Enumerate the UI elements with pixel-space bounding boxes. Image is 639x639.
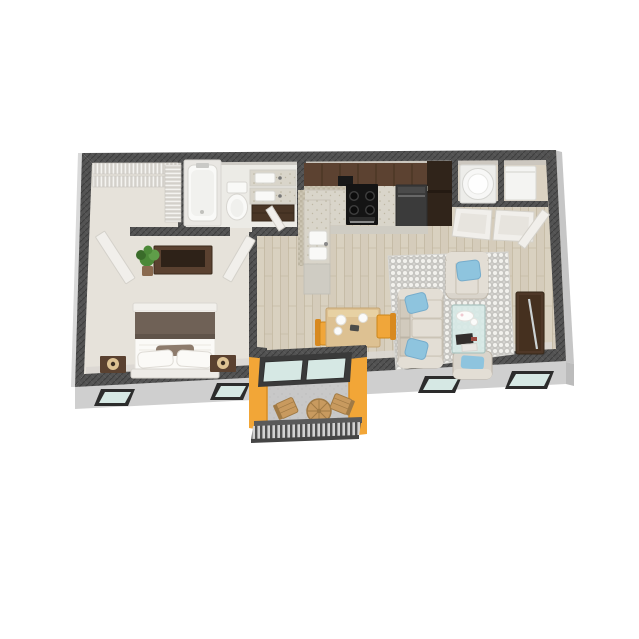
refrigerator-handle — [427, 190, 452, 193]
table-center — [317, 409, 321, 413]
refrigerator — [427, 161, 452, 226]
dryer-panel-line — [505, 171, 536, 173]
flat-tv — [161, 250, 205, 267]
balcony — [249, 345, 367, 443]
table-lamp-icon — [111, 362, 115, 366]
oven-handle — [350, 221, 374, 223]
decor-plate — [471, 319, 478, 326]
place-setting — [336, 315, 346, 325]
vanity-sink — [255, 173, 275, 183]
ottoman-back — [453, 369, 492, 379]
plant-foliage — [144, 246, 153, 255]
wire-shelf-side — [165, 165, 181, 222]
counter-end-face — [304, 264, 330, 294]
vanity-sink — [255, 191, 275, 201]
window-living-right — [505, 371, 554, 389]
burner — [366, 206, 375, 215]
coffee-table — [452, 305, 485, 353]
faucet-icon — [278, 194, 282, 198]
window-glass — [423, 379, 458, 390]
dresser — [154, 246, 212, 274]
washer-drum — [468, 174, 488, 194]
table-decor — [350, 325, 360, 332]
dryer — [505, 166, 536, 200]
nightstand-left — [100, 356, 126, 373]
back-cushion — [400, 319, 410, 337]
sink-basin — [309, 231, 327, 245]
bed-pillow — [176, 350, 212, 368]
throw-pillow — [456, 260, 481, 282]
plant-pot — [142, 266, 153, 276]
armchair — [446, 252, 488, 299]
floor-plan-rendering — [0, 0, 639, 639]
wall-laundry-left — [451, 154, 458, 206]
dining-chair-back — [390, 313, 396, 340]
media-console — [516, 292, 544, 354]
faucet-icon — [324, 242, 328, 246]
window-living-left — [418, 376, 462, 393]
decor-flower — [461, 314, 464, 317]
bed-pillow — [137, 350, 173, 369]
dishwasher — [396, 185, 427, 228]
dishwasher-handle — [398, 195, 425, 197]
sliding-door-pane — [263, 360, 303, 382]
wall-bedroom-north-a — [130, 227, 230, 236]
door-panel-inset — [498, 215, 529, 236]
throw-blanket — [461, 355, 485, 370]
tub-faucet-icon — [196, 163, 209, 168]
window-bedroom-left — [94, 389, 135, 406]
tub-basin — [191, 170, 214, 216]
bed-headboard — [131, 369, 219, 378]
faucet-icon — [278, 176, 282, 180]
decor-magazine — [462, 343, 477, 351]
toilet-tank — [227, 182, 247, 193]
ottoman-chair — [453, 351, 492, 379]
decor-accent — [471, 337, 477, 341]
table-lamp-icon — [221, 361, 225, 365]
blanket-fold — [135, 334, 215, 339]
sliding-door-pane — [306, 358, 346, 380]
seat-cushion — [412, 319, 442, 337]
place-setting — [359, 314, 368, 323]
balcony-railing — [251, 417, 362, 443]
burner — [366, 192, 375, 201]
counter-right-of-range — [378, 186, 396, 226]
place-setting — [334, 327, 342, 335]
wall-laundry-divider — [498, 156, 504, 204]
sink-basin — [309, 247, 327, 260]
toilet — [227, 182, 248, 220]
washer — [460, 165, 496, 203]
dining-chair-right — [377, 315, 391, 338]
bed — [131, 303, 219, 378]
upper-cabinets — [304, 163, 428, 187]
burner — [350, 206, 359, 215]
range — [346, 184, 378, 225]
burner — [350, 192, 359, 201]
armchair-armrest — [446, 261, 455, 293]
sofa — [398, 289, 443, 368]
exterior-face-corner — [566, 362, 574, 386]
floor-plan-canvas — [0, 0, 639, 639]
window-bedroom-right — [210, 383, 250, 400]
window-glass — [509, 374, 550, 386]
nightstand-right — [210, 355, 236, 372]
sliding-glass-door — [258, 352, 352, 387]
dishwasher-panel — [398, 187, 425, 193]
table-edge-highlight — [328, 310, 378, 317]
decor-book — [456, 333, 474, 345]
toilet-seat — [231, 199, 244, 217]
tub-drain-icon — [200, 210, 204, 214]
door-panel-inset — [457, 213, 487, 234]
